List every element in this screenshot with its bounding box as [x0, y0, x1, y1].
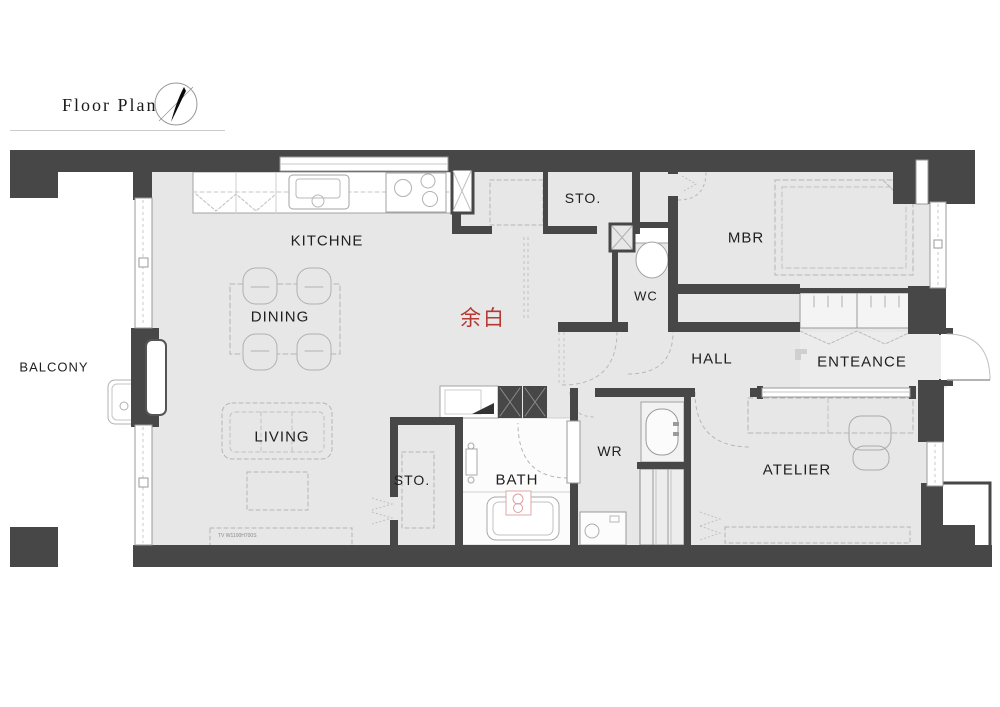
room-label-wr: WR: [597, 443, 622, 459]
room-label-entrance: ENTEANCE: [817, 354, 907, 371]
room-label-bath: BATH: [496, 472, 539, 489]
center-note: 余白: [460, 302, 506, 332]
room-label-hall: HALL: [691, 351, 733, 368]
room-label-sto-top: STO.: [565, 190, 601, 206]
room-label-mbr: MBR: [728, 230, 764, 247]
room-label-dining: DINING: [251, 309, 310, 326]
tv-annotation: TV W1100H700S: [218, 533, 257, 539]
floor-plan-page: Floor Plan: [0, 0, 1000, 707]
room-label-kitchen: KITCHNE: [291, 233, 364, 250]
room-label-atelier: ATELIER: [763, 462, 831, 479]
room-label-living: LIVING: [254, 429, 309, 446]
room-label-balcony: BALCONY: [19, 360, 88, 375]
room-label-wc: WC: [634, 289, 658, 304]
room-label-sto-bottom: STO.: [394, 472, 430, 488]
